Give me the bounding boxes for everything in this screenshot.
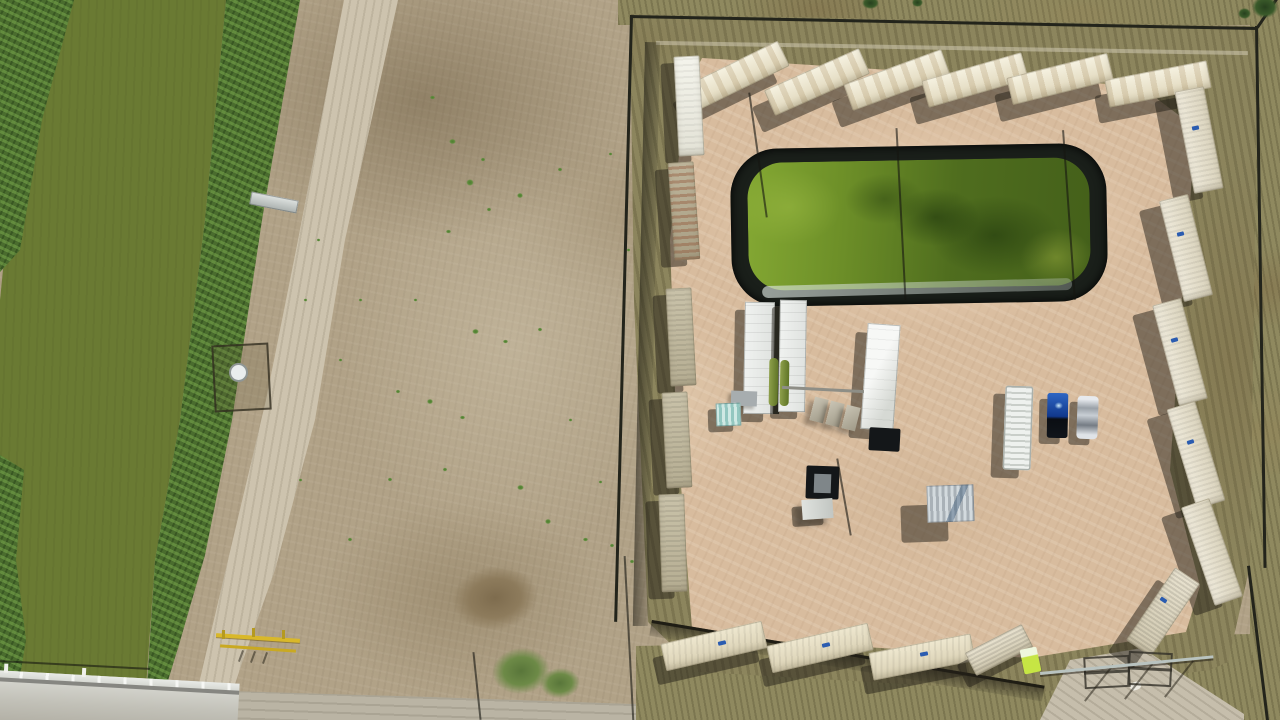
- bush: [298, 478, 303, 482]
- guardrail-post: [4, 664, 8, 673]
- bush: [395, 389, 401, 394]
- bush: [516, 484, 525, 492]
- tree-canopy: [1238, 8, 1251, 19]
- gate-post-shadow: [250, 651, 256, 663]
- grass-patch: [539, 667, 581, 700]
- container-left-4: [662, 391, 693, 488]
- bush: [358, 298, 363, 302]
- portable-toilet: [1020, 647, 1042, 675]
- fence-wire: [472, 652, 481, 720]
- bush: [471, 328, 480, 336]
- silver-car: [1076, 396, 1098, 440]
- bush: [516, 192, 524, 199]
- bush: [338, 358, 343, 362]
- bush: [502, 339, 509, 345]
- fence-wire: [624, 556, 635, 720]
- green-tank-2: [780, 360, 790, 406]
- entry-gate-frame-2: [1127, 651, 1173, 687]
- bush: [387, 477, 393, 482]
- bush: [608, 152, 613, 156]
- bush: [445, 229, 452, 235]
- scene-objects: [0, 0, 1280, 720]
- bush: [486, 207, 492, 212]
- bush: [609, 543, 615, 548]
- bush: [582, 537, 589, 543]
- guardrail-post: [82, 668, 86, 677]
- gate-post-shadow: [238, 650, 244, 662]
- white-service-unit: [801, 498, 833, 520]
- container-left-1: [673, 55, 704, 156]
- boom-shadow: [836, 458, 852, 535]
- ribbed-tank-trailer: [1003, 386, 1034, 471]
- rubble-patch: [448, 560, 542, 635]
- black-platform: [868, 427, 900, 452]
- corrugated-shed: [926, 484, 974, 523]
- bush: [429, 95, 436, 101]
- bush: [316, 238, 321, 242]
- bush: [557, 167, 563, 172]
- round-tank: [229, 363, 248, 382]
- bush: [537, 327, 543, 332]
- bush: [544, 518, 552, 525]
- yellow-gate-bar: [216, 633, 300, 643]
- tree-canopy: [862, 0, 879, 9]
- bush: [629, 559, 635, 564]
- aerial-well-pad-photo: [0, 0, 1280, 720]
- blue-pickup-truck: [1047, 393, 1069, 438]
- bush: [568, 418, 573, 422]
- green-tank-1: [769, 358, 779, 406]
- equipment-trailer-c: [860, 323, 900, 431]
- bush: [347, 537, 353, 542]
- container-left-2: [668, 161, 701, 261]
- guy-wire: [896, 128, 907, 300]
- bush: [626, 248, 631, 252]
- bush: [465, 178, 475, 187]
- guy-wire: [1062, 130, 1076, 300]
- tree-canopy: [912, 0, 923, 7]
- bush: [413, 298, 418, 302]
- yellow-gate-post: [252, 628, 255, 637]
- yellow-gate-post: [222, 630, 225, 639]
- bush: [459, 415, 466, 421]
- bush: [480, 157, 486, 162]
- bush: [598, 480, 603, 484]
- power-line: [0, 660, 150, 670]
- yellow-gate-post: [282, 630, 285, 639]
- teal-shed: [716, 403, 742, 427]
- bush: [442, 467, 448, 472]
- wellhead: [814, 474, 832, 494]
- yellow-gate-bar-2: [220, 644, 296, 652]
- bush: [303, 298, 308, 302]
- bush: [448, 138, 457, 146]
- bush: [426, 398, 434, 405]
- gate-post-shadow: [262, 652, 268, 664]
- container-left-5: [658, 494, 687, 593]
- container-left-3: [665, 287, 696, 386]
- canal-walkway: [249, 192, 299, 214]
- tree-canopy: [1252, 0, 1278, 18]
